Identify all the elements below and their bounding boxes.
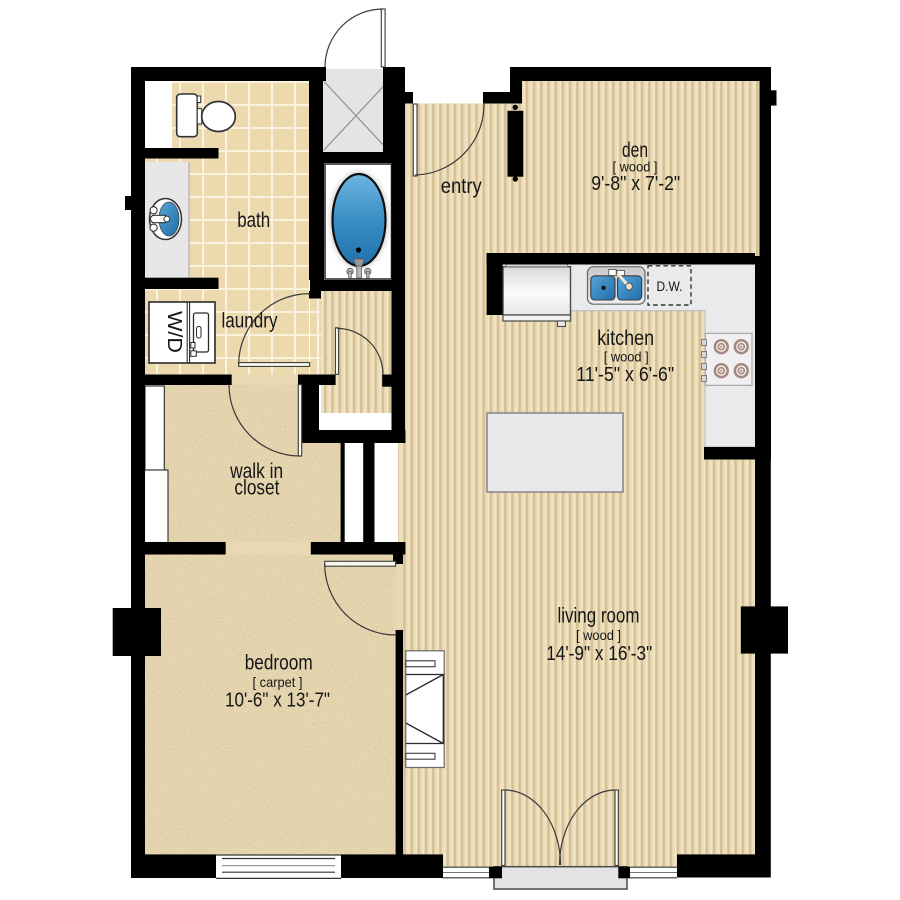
svg-text:kitchen: kitchen	[597, 327, 654, 350]
svg-text:9'-8" x 7'-2": 9'-8" x 7'-2"	[591, 173, 680, 195]
svg-text:entry: entry	[441, 175, 482, 198]
svg-text:11'-5" x 6'-6": 11'-5" x 6'-6"	[576, 364, 674, 386]
svg-text:W/D: W/D	[163, 311, 185, 353]
svg-text:laundry: laundry	[222, 310, 278, 333]
svg-text:[ wood ]: [ wood ]	[576, 627, 621, 643]
svg-text:closet: closet	[234, 477, 279, 500]
svg-text:10'-6" x 13'-7": 10'-6" x 13'-7"	[225, 690, 330, 712]
svg-text:bedroom: bedroom	[245, 652, 313, 675]
svg-text:living room: living room	[558, 605, 640, 628]
svg-text:[ wood ]: [ wood ]	[604, 349, 649, 365]
svg-text:D.W.: D.W.	[657, 279, 683, 294]
svg-text:bath: bath	[237, 209, 270, 232]
svg-text:[ carpet ]: [ carpet ]	[253, 674, 303, 690]
svg-text:14'-9" x 16'-3": 14'-9" x 16'-3"	[546, 643, 652, 665]
